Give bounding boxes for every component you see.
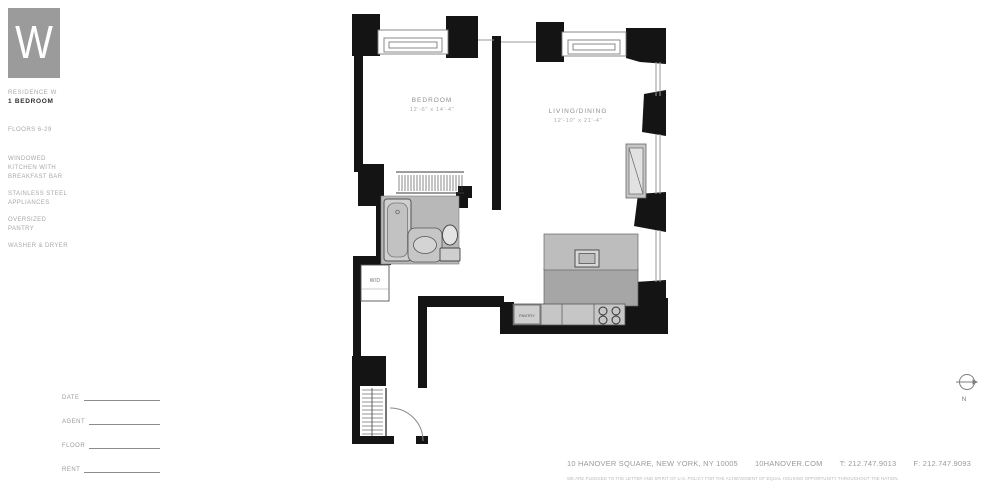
feature-list: WINDOWED KITCHEN WITH BREAKFAST BAR STAI… [8, 155, 78, 251]
wd-label: W/D [370, 278, 381, 284]
building-logo: W [8, 8, 60, 78]
living-window [562, 32, 626, 56]
living-dining-label: LIVING/DINING [549, 108, 608, 115]
bedroom-label: BEDROOM [412, 97, 453, 104]
side-window-unit [626, 144, 646, 198]
kitchen-island-base [544, 268, 638, 306]
feature-item: WINDOWED KITCHEN WITH BREAKFAST BAR [8, 155, 70, 182]
feature-item: OVERSIZED PANTRY [8, 216, 70, 234]
bedroom-dimensions: 12'-6" x 14'-4" [410, 107, 455, 113]
bathroom [381, 196, 460, 264]
hall-south-wall [418, 296, 504, 307]
form-row-date: DATE [62, 392, 160, 401]
floor-label: FLOOR [62, 443, 85, 449]
form-row-floor: FLOOR [62, 440, 160, 449]
form-row-rent: RENT [62, 464, 160, 473]
footer-disclaimer: WE ARE PLEDGED TO THE LETTER AND SPIRIT … [567, 476, 899, 481]
ptac-vent [573, 44, 615, 50]
closet-hatch [399, 175, 462, 191]
agent-label: AGENT [62, 419, 85, 425]
bedroom-living-partition-wall [492, 36, 501, 210]
entry-west-wall [352, 356, 360, 444]
sidebar: RESIDENCE W 1 BEDROOM FLOORS 6-29 WINDOW… [8, 90, 78, 259]
window-pier [642, 90, 666, 136]
residence-label: RESIDENCE W [8, 90, 78, 96]
kitchen-sink-basin [579, 254, 595, 264]
bedroom-window [378, 30, 448, 54]
living-dining-dimensions: 12'-10" x 21'-4" [554, 118, 602, 124]
ptac-vent [389, 42, 437, 48]
rent-blank-line [84, 465, 160, 473]
feature-item: STAINLESS STEEL APPLIANCES [8, 190, 70, 208]
hall-west-wall [353, 256, 361, 368]
floor-blank-line [89, 441, 160, 449]
window-pier [626, 28, 666, 64]
date-label: DATE [62, 395, 80, 401]
floors-label: FLOORS 6-29 [8, 127, 78, 133]
bathroom-corner-wall [358, 164, 384, 206]
door-jamb-wall [416, 436, 428, 444]
footer: 10 HANOVER SQUARE, NEW YORK, NY 10005 10… [567, 459, 971, 468]
bathtub-basin [388, 203, 408, 257]
agent-blank-line [89, 417, 160, 425]
washer-dryer-closet: W/D [361, 265, 389, 301]
date-blank-line [84, 393, 160, 401]
bedroom-west-wall [354, 38, 363, 172]
logo-letter: W [15, 20, 53, 66]
form-row-agent: AGENT [62, 416, 160, 425]
toilet-tank [440, 248, 460, 261]
rent-label: RENT [62, 467, 80, 473]
feature-item: WASHER & DRYER [8, 242, 70, 251]
footer-phone: T: 212.747.9013 [840, 459, 897, 468]
north-arrow: N [956, 375, 978, 404]
footer-address: 10 HANOVER SQUARE, NEW YORK, NY 10005 [567, 459, 738, 468]
unit-type-label: 1 BEDROOM [8, 98, 78, 105]
north-label: N [962, 396, 967, 403]
kitchen: PANTRY [513, 234, 638, 325]
entry-closet [362, 388, 386, 436]
footer-fax: F: 212.747.9093 [913, 459, 971, 468]
footer-website: 10HANOVER.COM [755, 459, 823, 468]
window-pier [446, 16, 478, 58]
window-pier [536, 22, 564, 62]
pantry-label: PANTRY [519, 314, 535, 318]
toilet-bowl [443, 225, 458, 245]
hall-east-wall [418, 296, 427, 388]
bedroom-closet [396, 172, 464, 193]
entry-south-wall [352, 436, 394, 444]
agent-form: DATE AGENT FLOOR RENT [62, 392, 160, 488]
closet-shelf-hatch [362, 390, 383, 434]
vanity-sink [414, 237, 437, 254]
